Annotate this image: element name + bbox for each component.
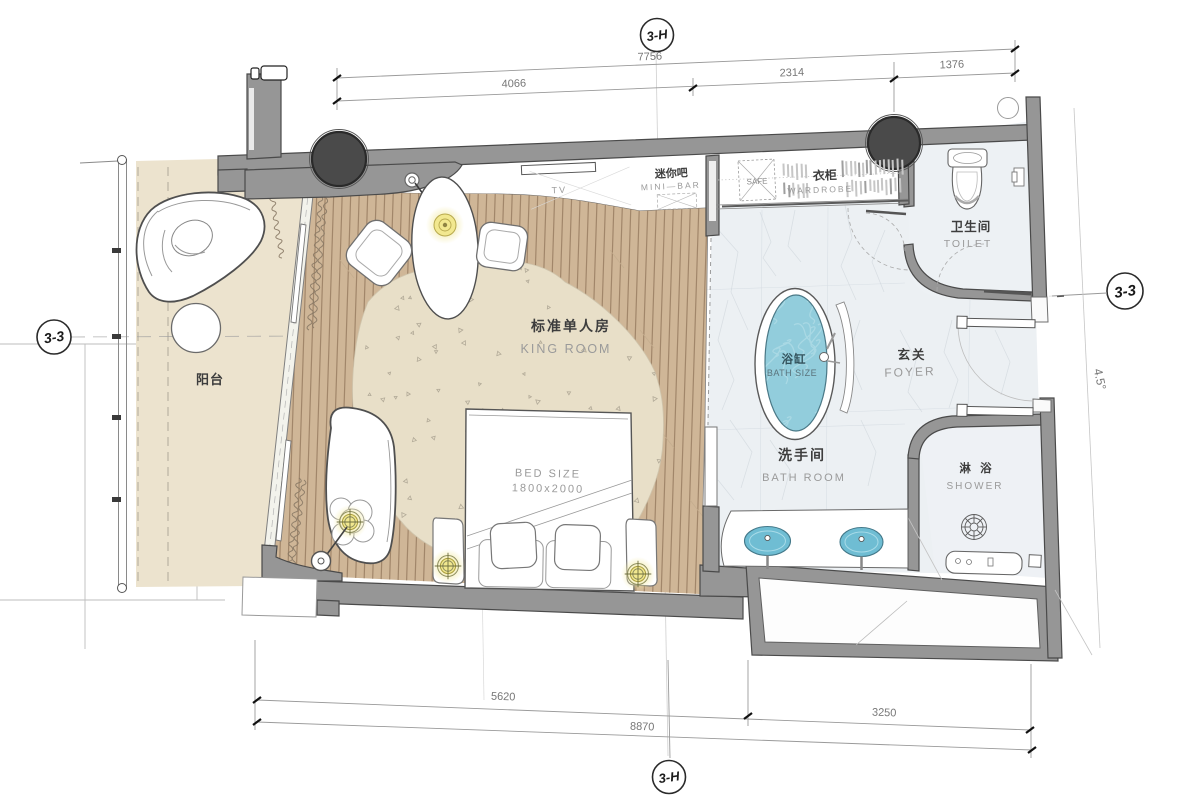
svg-text:SAFE: SAFE [746, 176, 767, 186]
svg-text:3-3: 3-3 [1113, 282, 1137, 302]
svg-text:BATH SIZE: BATH SIZE [767, 368, 817, 378]
svg-text:4066: 4066 [501, 77, 526, 90]
svg-text:1800x2000: 1800x2000 [512, 482, 585, 496]
svg-text:迷你吧: 迷你吧 [653, 165, 688, 180]
svg-text:玄关: 玄关 [897, 347, 926, 362]
svg-text:8870: 8870 [630, 721, 655, 734]
svg-text:BED SIZE: BED SIZE [515, 467, 581, 480]
svg-text:TV: TV [551, 185, 567, 196]
svg-text:衣柜: 衣柜 [813, 167, 838, 183]
svg-text:3-H: 3-H [658, 768, 681, 786]
svg-text:5620: 5620 [491, 691, 516, 704]
svg-text:TOILET: TOILET [944, 238, 993, 250]
svg-text:SHOWER: SHOWER [947, 481, 1004, 492]
svg-text:浴缸: 浴缸 [782, 352, 807, 366]
svg-text:标准单人房: 标准单人房 [530, 318, 611, 334]
svg-text:阳台: 阳台 [196, 372, 224, 387]
svg-text:2314: 2314 [779, 66, 804, 79]
svg-text:3-H: 3-H [646, 26, 669, 44]
svg-text:FOYER: FOYER [884, 364, 936, 380]
svg-text:KING ROOM: KING ROOM [521, 342, 612, 356]
svg-text:3250: 3250 [872, 707, 897, 720]
svg-text:淋 浴: 淋 浴 [959, 461, 994, 475]
svg-text:BATH ROOM: BATH ROOM [762, 472, 846, 484]
svg-text:卫生间: 卫生间 [951, 219, 992, 234]
svg-text:洗手间: 洗手间 [778, 447, 826, 463]
svg-text:7756: 7756 [637, 50, 662, 63]
svg-text:1376: 1376 [939, 58, 964, 71]
